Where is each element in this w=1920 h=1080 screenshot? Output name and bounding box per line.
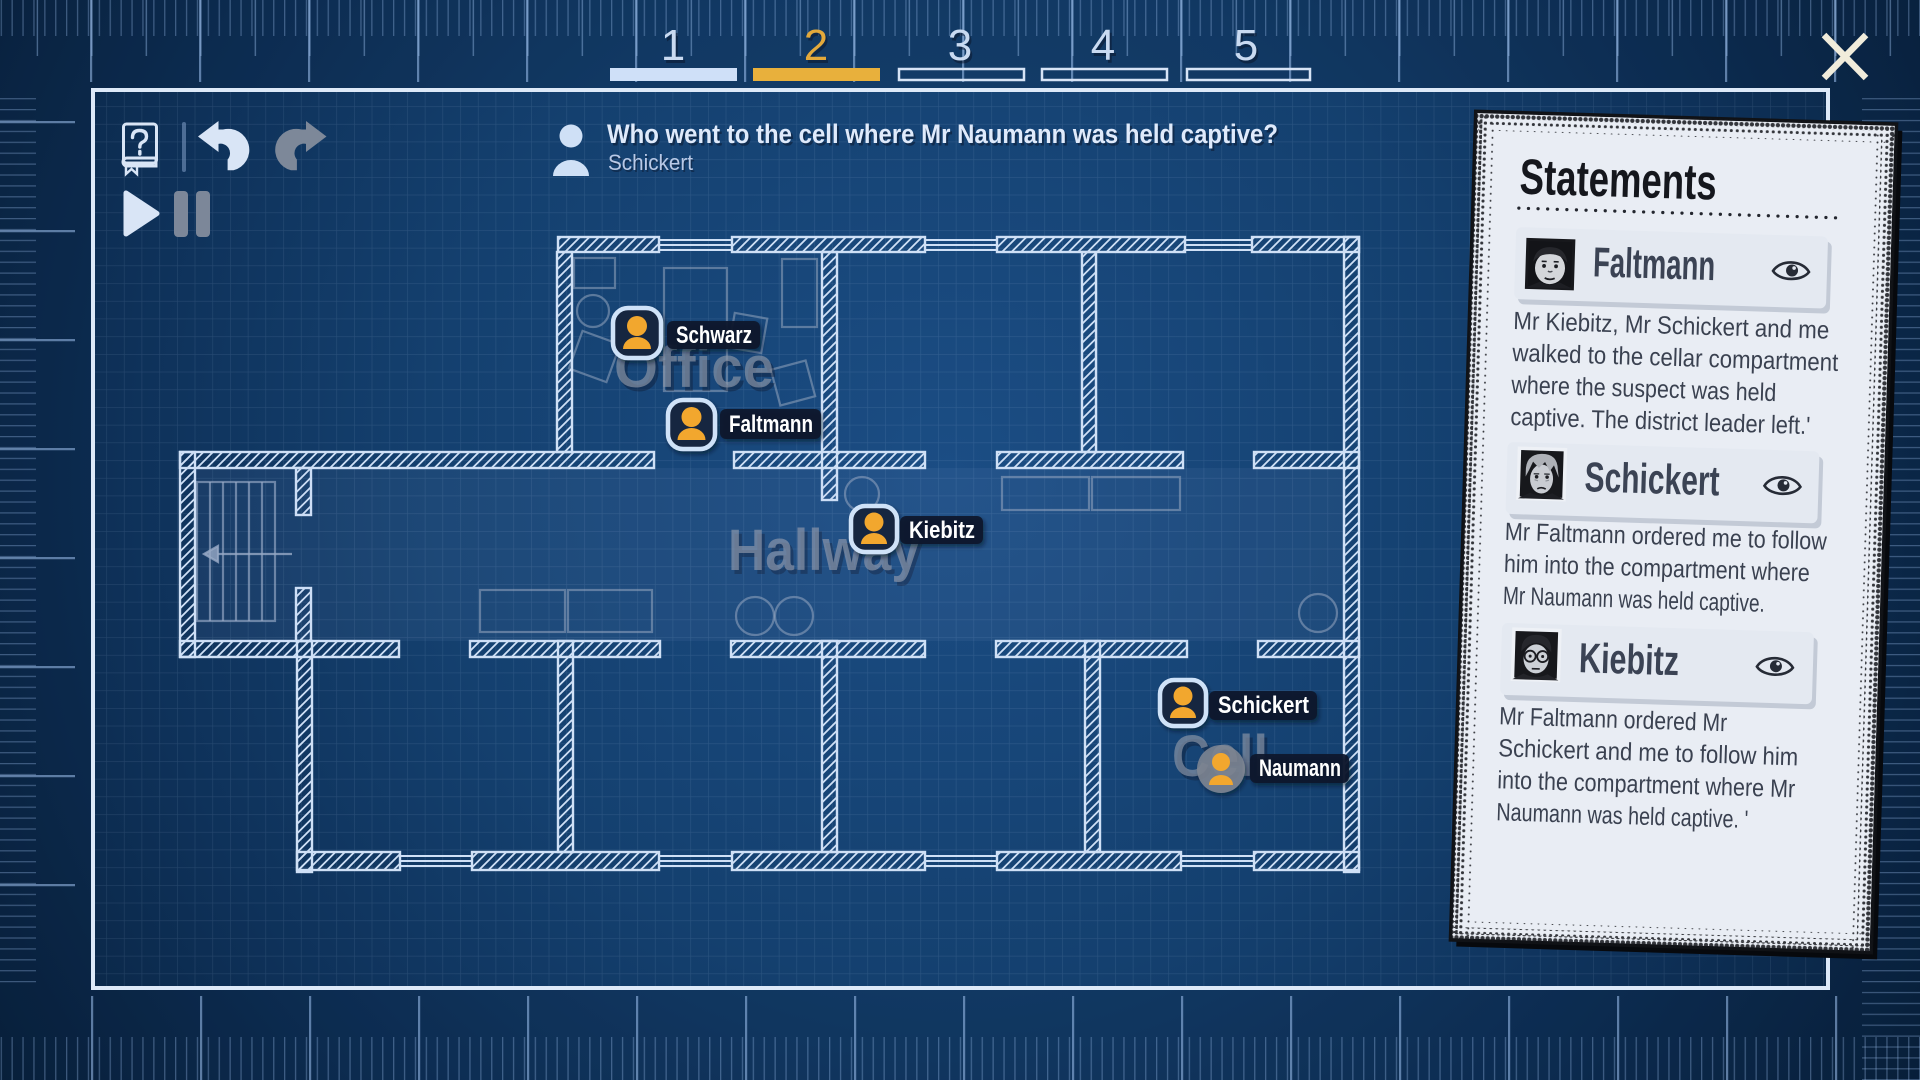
- svg-text:2: 2: [804, 21, 828, 70]
- svg-text:5: 5: [1234, 21, 1258, 70]
- svg-text:Schickert: Schickert: [1584, 453, 1720, 504]
- svg-text:Faltmann: Faltmann: [729, 411, 813, 438]
- svg-text:1: 1: [661, 21, 685, 70]
- svg-text:Kiebitz: Kiebitz: [1578, 634, 1679, 684]
- svg-text:Faltmann: Faltmann: [1592, 238, 1715, 289]
- svg-text:Schwarz: Schwarz: [676, 322, 752, 349]
- svg-text:4: 4: [1091, 21, 1115, 70]
- svg-text:Who went to the cell where Mr: Who went to the cell where Mr Naumann wa…: [607, 119, 1278, 149]
- svg-text:Naumann: Naumann: [1259, 755, 1341, 782]
- svg-text:Statements: Statements: [1519, 149, 1718, 211]
- svg-text:Kiebitz: Kiebitz: [909, 517, 975, 544]
- svg-text:Schickert: Schickert: [1218, 692, 1309, 719]
- svg-text:Schickert: Schickert: [608, 150, 693, 175]
- svg-text:3: 3: [948, 21, 972, 70]
